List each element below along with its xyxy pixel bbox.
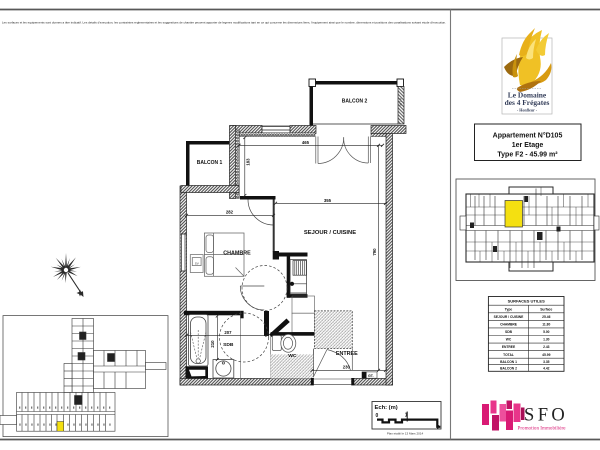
svg-text:210: 210 (210, 340, 215, 348)
svg-text:183: 183 (245, 158, 250, 166)
svg-text:SURFACES UTILES: SURFACES UTILES (508, 299, 545, 304)
svg-text:4.42: 4.42 (543, 366, 550, 370)
svg-text:des 4 Frégates: des 4 Frégates (505, 98, 550, 107)
svg-text:2.43: 2.43 (543, 345, 550, 349)
svg-text:WC: WC (506, 338, 512, 342)
svg-text:282: 282 (226, 210, 234, 215)
svg-text:0: 0 (376, 413, 379, 419)
svg-text:Appartement N°D105: Appartement N°D105 (493, 132, 563, 140)
svg-text:11.80: 11.80 (542, 322, 550, 326)
svg-text:WC: WC (288, 353, 297, 359)
svg-text:207: 207 (224, 330, 232, 335)
svg-text:H:1.00: H:1.00 (399, 98, 403, 106)
svg-text:BALCON 1: BALCON 1 (197, 160, 223, 166)
svg-text:SEJOUR / CUISINE: SEJOUR / CUISINE (494, 315, 524, 319)
svg-text:790: 790 (372, 248, 377, 256)
svg-text:ENTREE: ENTREE (336, 351, 358, 357)
svg-text:GT.: GT. (368, 374, 374, 378)
svg-text:25.46: 25.46 (542, 315, 550, 319)
svg-text:465: 465 (302, 140, 310, 145)
svg-text:SV: SV (195, 262, 199, 266)
svg-text:CHAMBRE: CHAMBRE (500, 322, 518, 326)
svg-text:5.00: 5.00 (543, 330, 550, 334)
svg-text:SEJOUR / CUISINE: SEJOUR / CUISINE (304, 230, 356, 236)
svg-text:Type: Type (505, 307, 513, 311)
svg-text:SDB: SDB (223, 342, 234, 348)
svg-text:Plan etabli le 13 Mars 2014: Plan etabli le 13 Mars 2014 (387, 432, 424, 436)
svg-text:ENTREE: ENTREE (502, 345, 516, 349)
svg-text:BALCON 2: BALCON 2 (500, 366, 517, 370)
svg-text:BALCON 2: BALCON 2 (342, 99, 368, 105)
svg-text:355: 355 (324, 198, 332, 203)
svg-text:45.99: 45.99 (542, 353, 550, 357)
svg-text:SFO: SFO (524, 406, 568, 426)
svg-text:Les surfaces et les equipement: Les surfaces et les equipements sont don… (2, 21, 446, 25)
svg-text:Promotion Immobilière: Promotion Immobilière (518, 426, 567, 432)
svg-text:1.30: 1.30 (543, 338, 550, 342)
svg-text:Type F2 - 45.99 m²: Type F2 - 45.99 m² (497, 151, 558, 158)
svg-text:- Honfleur -: - Honfleur - (517, 108, 538, 113)
svg-text:230: 230 (343, 365, 351, 370)
svg-text:1er Etage: 1er Etage (512, 142, 544, 149)
svg-text:BALCON 1: BALCON 1 (500, 360, 517, 364)
svg-text:CHAMBRE: CHAMBRE (223, 251, 251, 257)
svg-text:Ech: (m): Ech: (m) (375, 405, 398, 411)
svg-text:3.35: 3.35 (543, 360, 550, 364)
svg-text:TOTAL: TOTAL (503, 353, 514, 357)
svg-text:SDB: SDB (505, 330, 513, 334)
svg-text:Surface: Surface (540, 307, 552, 311)
